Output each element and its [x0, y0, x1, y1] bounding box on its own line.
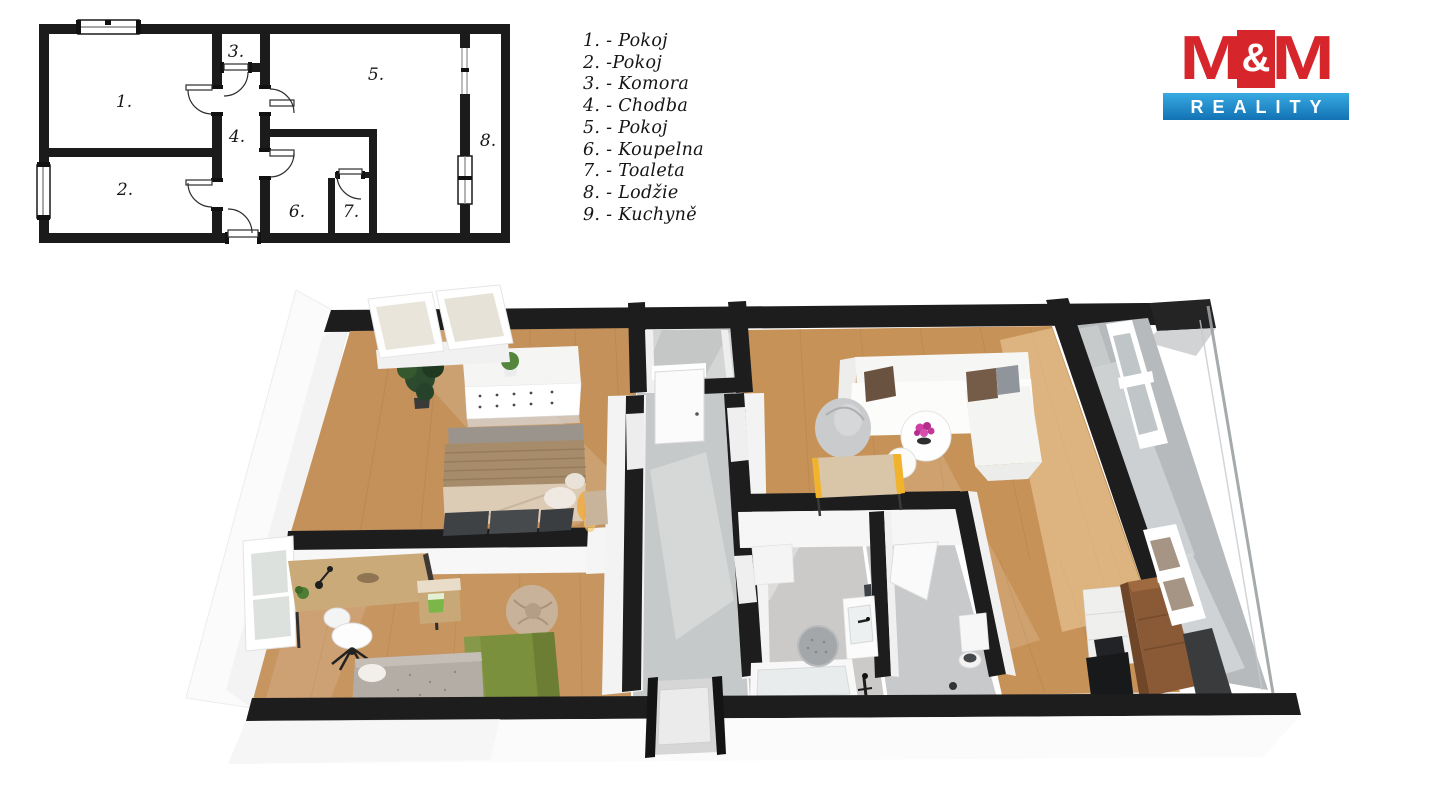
legend-item-8: 8. - Lodžie: [583, 183, 704, 205]
nightstand: [584, 490, 608, 526]
page: 1. 2. 3. 4. 5. 6. 7. 8. 1. - Pokoj 2. -P…: [0, 0, 1440, 810]
bath-rug: [798, 626, 838, 666]
entrance-door: [645, 676, 726, 758]
storage-room-door: [652, 363, 706, 444]
floor-drain: [949, 682, 957, 690]
floorplan-2d: 1. 2. 3. 4. 5. 6. 7. 8.: [35, 8, 517, 250]
storage-box: [417, 578, 461, 624]
legend-item-5: 5. - Pokoj: [583, 118, 704, 140]
room-label-2: 2.: [116, 180, 133, 200]
pillow-gray: [996, 365, 1020, 395]
study-window: [243, 536, 296, 651]
logo-mm-row: M & M: [1163, 28, 1349, 90]
logo-m-left: M: [1179, 30, 1240, 88]
bathroom-cabinet: [752, 544, 794, 585]
legend-item-6: 6. - Koupelna: [583, 140, 704, 162]
armchair: [815, 398, 871, 458]
toilet-tank: [959, 613, 989, 652]
sink: [843, 596, 878, 659]
legend-item-4: 4. - Chodba: [583, 96, 704, 118]
room-label-3: 3.: [228, 42, 244, 62]
floorplan-3d: [170, 278, 1350, 783]
legend: 1. - Pokoj 2. -Pokoj 3. - Komora 4. - Ch…: [583, 31, 704, 226]
logo-m-right: M: [1272, 30, 1333, 88]
legend-item-2: 2. -Pokoj: [583, 53, 704, 75]
pillow-brown-right: [966, 368, 998, 402]
legend-item-1: 1. - Pokoj: [583, 31, 704, 53]
plan2d-walls: [39, 24, 510, 243]
room-label-7: 7.: [343, 202, 359, 222]
room-label-5: 5.: [368, 65, 384, 85]
room-label-1: 1.: [116, 92, 132, 112]
bean-bag: [506, 585, 558, 637]
wall-living-bathroom: [736, 491, 966, 548]
legend-item-7: 7. - Toaleta: [583, 161, 704, 183]
logo-ampersand: &: [1237, 30, 1276, 88]
mm-reality-logo: M & M REALITY: [1163, 28, 1349, 120]
bed: [443, 424, 608, 536]
room-label-4: 4.: [228, 127, 245, 147]
wall-corridor-left: [602, 395, 646, 695]
room-label-6: 6.: [289, 202, 305, 222]
pillow-brown-left: [864, 366, 896, 402]
legend-item-9: 9. - Kuchyně: [583, 205, 704, 227]
plan2d-windows: [37, 20, 472, 220]
legend-item-3: 3. - Komora: [583, 74, 704, 96]
room-label-8: 8.: [480, 131, 496, 151]
logo-reality-banner: REALITY: [1163, 93, 1349, 120]
